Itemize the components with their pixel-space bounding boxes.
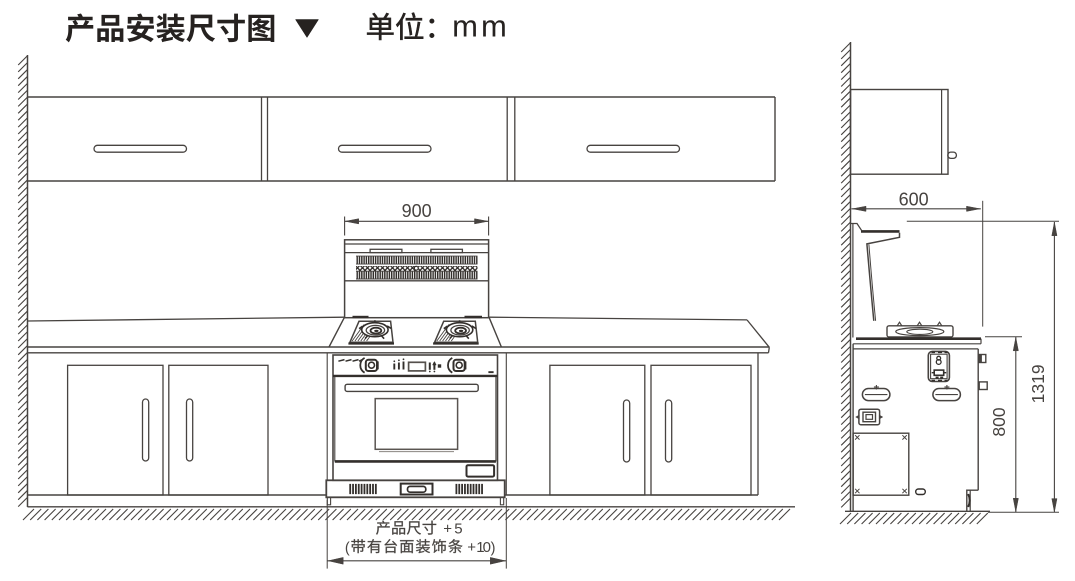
svg-text:1319: 1319 [1028,364,1048,403]
svg-text:+: + [443,520,452,537]
svg-text:800: 800 [989,407,1009,436]
svg-text:5: 5 [454,520,462,537]
svg-text:): ) [491,541,496,557]
svg-text:600: 600 [899,189,929,209]
svg-text:900: 900 [402,201,432,221]
svg-text:(: ( [345,541,350,557]
svg-text:+: + [467,539,476,556]
svg-text:mm: mm [452,8,510,43]
